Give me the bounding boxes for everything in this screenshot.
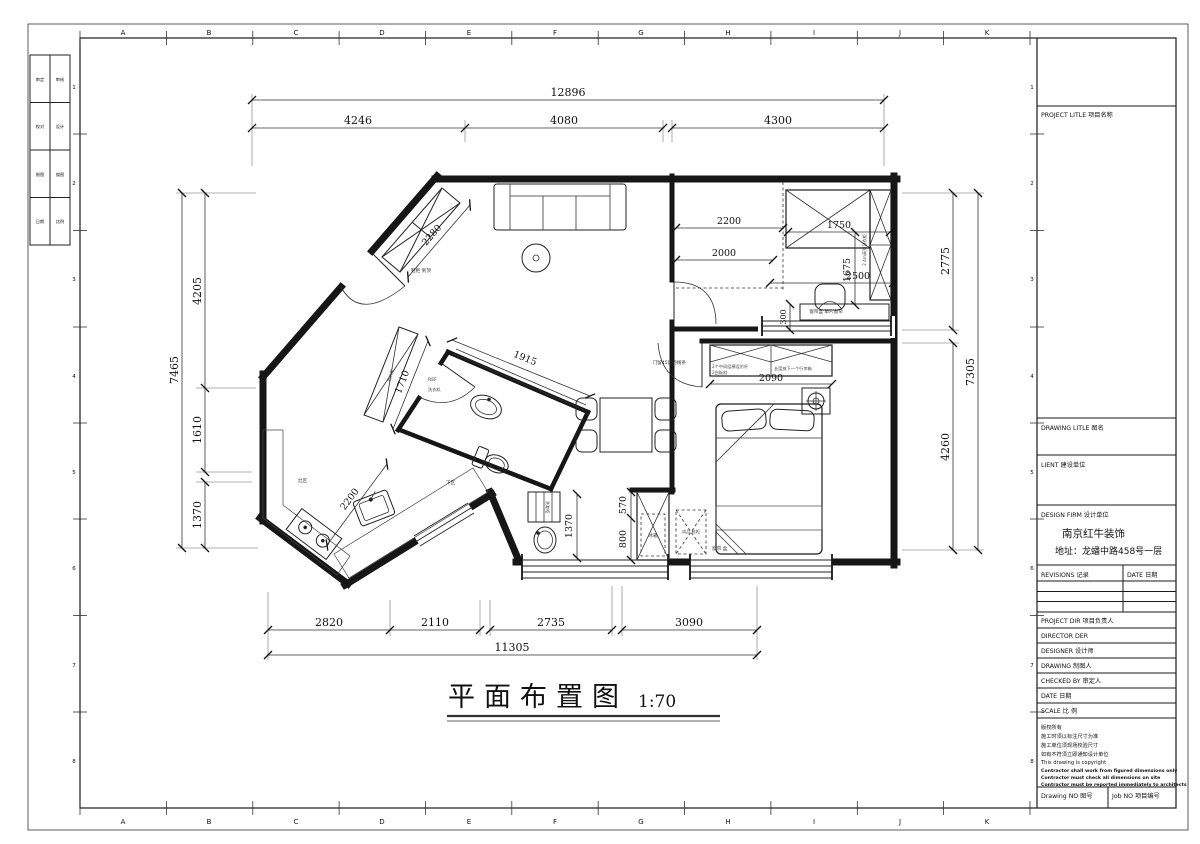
signature-strip: 审定审核 校对设计 制图描图 日期比例 xyxy=(30,55,70,245)
revisions-label: REVISIONS 记录 xyxy=(1041,571,1089,579)
svg-text:1: 1 xyxy=(72,85,76,91)
svg-text:如有不符须立即通知设计单位: 如有不符须立即通知设计单位 xyxy=(1041,750,1108,758)
svg-text:D: D xyxy=(379,818,384,826)
checked-by-label: CHECKED BY 审定人 xyxy=(1041,677,1101,685)
svg-text:施工单位须现场校验尺寸: 施工单位须现场校验尺寸 xyxy=(1041,741,1098,749)
hall-vanity-cabinet xyxy=(528,492,560,522)
revisions-date-label: DATE 日期 xyxy=(1127,571,1157,579)
design-firm-name: 南京红牛装饰 xyxy=(1062,527,1125,540)
entry-door xyxy=(341,253,405,304)
svg-text:3090: 3090 xyxy=(675,616,703,629)
study-dashed-area xyxy=(676,182,783,290)
svg-text:1: 1 xyxy=(1030,85,1034,91)
svg-text:J: J xyxy=(898,29,901,37)
svg-text:8: 8 xyxy=(1030,759,1034,765)
svg-text:800: 800 xyxy=(618,530,629,548)
dimensions-right: 7305 2775 4260 xyxy=(939,193,978,550)
design-firm-label: DESIGN FIRM 设计单位 xyxy=(1041,511,1109,519)
drawing-label: DRAWING 制图人 xyxy=(1041,662,1092,670)
svg-text:11305: 11305 xyxy=(495,641,530,654)
svg-text:A: A xyxy=(121,29,126,37)
svg-text:2: 2 xyxy=(72,181,76,187)
svg-text:H: H xyxy=(725,29,730,37)
row-numbers: 12345678 12345678 xyxy=(72,85,1034,765)
svg-text:B: B xyxy=(207,29,212,37)
svg-text:3: 3 xyxy=(1030,277,1034,283)
hall-basin xyxy=(534,527,556,553)
project-title-label: PROJECT LITLE 项目名称 xyxy=(1041,111,1113,119)
svg-text:描图: 描图 xyxy=(56,171,64,178)
design-firm-address: 地址：龙蟠中路458号一层 xyxy=(1055,545,1162,557)
lower-area-label: 下区 xyxy=(446,480,456,486)
svg-text:3: 3 xyxy=(72,277,76,283)
svg-text:4: 4 xyxy=(1030,374,1034,380)
bedroom-curtain-label: 窗帘 盒 xyxy=(712,545,728,552)
study-wardrobes xyxy=(786,190,891,300)
svg-text:1370: 1370 xyxy=(191,501,204,529)
copyright-note: 版权所有 施工时须以标注尺寸为准 施工单位须现场校验尺寸 如有不符须立即通知设计… xyxy=(1040,723,1187,788)
svg-text:1710: 1710 xyxy=(393,369,412,396)
svg-text:B: B xyxy=(207,818,212,826)
svg-text:1750: 1750 xyxy=(827,220,851,231)
svg-text:C: C xyxy=(294,818,299,826)
svg-text:制图: 制图 xyxy=(36,171,44,178)
svg-text:K: K xyxy=(985,29,990,37)
plan-title: 平面布置图 xyxy=(448,682,628,713)
scale-label: SCALE 比 例 xyxy=(1041,707,1077,715)
sofa xyxy=(494,184,626,230)
svg-text:E: E xyxy=(467,818,471,826)
svg-text:2110: 2110 xyxy=(421,616,449,629)
director-label: DIRECTOR DER xyxy=(1041,633,1089,640)
svg-text:版权所有: 版权所有 xyxy=(1041,723,1062,731)
svg-text:I: I xyxy=(813,818,815,826)
tall-wardrobe-label: 2.4m高到顶衣柜 xyxy=(861,234,868,266)
svg-text:1610: 1610 xyxy=(191,416,204,444)
column-letters-top: ABCDEFGHIJK xyxy=(121,29,990,37)
svg-text:A: A xyxy=(121,818,126,826)
wardrobe-note-1: 2个中间层横设吊杆 xyxy=(712,363,749,370)
svg-text:2280: 2280 xyxy=(420,223,444,248)
door45-label: 门留45度的线条 xyxy=(653,359,687,366)
nightstand-lamp xyxy=(802,388,830,414)
bedroom-wardrobe xyxy=(710,345,832,376)
svg-text:12896: 12896 xyxy=(551,86,586,99)
coffee-table xyxy=(522,244,550,272)
title-block: PROJECT LITLE 项目名称 DRAWING LITLE 图名 LIEN… xyxy=(1037,106,1187,808)
svg-text:F: F xyxy=(553,818,557,826)
svg-text:设计: 设计 xyxy=(56,123,64,130)
svg-text:7305: 7305 xyxy=(964,358,977,386)
svg-text:7: 7 xyxy=(72,663,76,669)
window-living xyxy=(522,554,668,582)
washer-label: 洗衣机 xyxy=(428,386,441,393)
svg-text:5: 5 xyxy=(1030,470,1034,476)
svg-text:K: K xyxy=(985,818,990,826)
svg-text:审核: 审核 xyxy=(56,76,65,83)
stove xyxy=(286,509,342,560)
bath-basin xyxy=(467,391,505,423)
svg-text:7: 7 xyxy=(1030,663,1034,669)
svg-text:日期: 日期 xyxy=(36,219,44,225)
dining-set xyxy=(576,398,676,452)
drawing-sheet: ABCDEFGHIJK ABCDEFGHIJK 12345678 1234567… xyxy=(0,0,1200,844)
wardrobe-note-3: 长度放下一个行李箱 xyxy=(774,365,812,372)
svg-text:校对: 校对 xyxy=(36,123,44,130)
svg-text:Contractor must check all dime: Contractor must check all dimensions on … xyxy=(1041,775,1160,781)
dimensions-bottom: 2820 2110 2735 3090 11305 xyxy=(268,616,757,655)
floor-plan-svg: ABCDEFGHIJK ABCDEFGHIJK 12345678 1234567… xyxy=(0,0,1200,844)
window-kitchen xyxy=(414,503,474,546)
project-dir-label: PROJECT DIR 项目负责人 xyxy=(1041,617,1114,625)
svg-text:施工时须以标注尺寸为准: 施工时须以标注尺寸为准 xyxy=(1041,732,1098,740)
bed xyxy=(716,404,822,554)
svg-text:2500: 2500 xyxy=(846,271,870,282)
svg-text:2200: 2200 xyxy=(338,487,361,513)
svg-text:4205: 4205 xyxy=(191,277,204,305)
fridge-cabinet xyxy=(637,492,669,560)
column-letters-bottom: ABCDEFGHIJK xyxy=(121,818,990,826)
drawing-no-label: Drawing NO 图号 xyxy=(1041,793,1093,800)
svg-text:2775: 2775 xyxy=(939,247,952,275)
svg-text:6: 6 xyxy=(72,566,76,572)
svg-text:H: H xyxy=(725,818,730,826)
svg-text:This drawing is copyright: This drawing is copyright xyxy=(1040,760,1106,766)
svg-text:E: E xyxy=(467,29,471,37)
svg-text:4246: 4246 xyxy=(344,114,372,127)
svg-text:G: G xyxy=(638,818,643,826)
wardrobe-note-2: 2白板材 xyxy=(712,369,727,376)
svg-text:比例: 比例 xyxy=(56,218,64,225)
ref-label: REF xyxy=(428,377,437,383)
designer-label: DESIGNER 设计师 xyxy=(1041,647,1094,655)
vanity-cabinet-label: 洗漱柜 xyxy=(544,501,551,514)
svg-text:1370: 1370 xyxy=(564,514,575,538)
ready-cabinet-label: 成品 鞋柜 xyxy=(682,528,700,535)
svg-text:4080: 4080 xyxy=(550,114,578,127)
client-label: LIENT 建设单位 xyxy=(1041,461,1085,469)
storage-label: 收纳柜 xyxy=(385,368,396,382)
plan-scale: 1:70 xyxy=(638,692,676,712)
svg-text:4300: 4300 xyxy=(764,114,792,127)
svg-text:570: 570 xyxy=(618,496,629,514)
svg-text:5: 5 xyxy=(72,470,76,476)
svg-text:Contractor must be reported im: Contractor must be reported immediately … xyxy=(1041,782,1187,788)
svg-text:2200: 2200 xyxy=(717,216,741,227)
job-no-label: Job NO 项目编号 xyxy=(1111,792,1160,800)
dimensions-top: 12896 4246 4080 4300 xyxy=(252,86,884,128)
window-bedroom xyxy=(690,554,832,582)
fridge-label: 冰箱 xyxy=(648,532,658,539)
date-label: DATE 日期 xyxy=(1041,692,1071,700)
svg-text:G: G xyxy=(638,29,643,37)
svg-text:I: I xyxy=(813,29,815,37)
svg-text:7465: 7465 xyxy=(168,356,181,384)
svg-text:2820: 2820 xyxy=(315,616,343,629)
svg-text:D: D xyxy=(379,29,384,37)
svg-text:2: 2 xyxy=(1030,181,1034,187)
svg-text:2000: 2000 xyxy=(712,248,736,259)
svg-text:300: 300 xyxy=(779,309,788,324)
shoe-cabinet-label: 鞋柜 到顶 xyxy=(411,267,431,274)
drawing-title-label: DRAWING LITLE 图名 xyxy=(1041,424,1104,432)
dimensions-left: 7465 4205 1610 1370 xyxy=(168,193,205,548)
svg-text:6: 6 xyxy=(1030,566,1034,572)
svg-text:J: J xyxy=(898,818,901,826)
svg-text:8: 8 xyxy=(72,759,76,765)
study-curtain-label: 窗帘盒 单片窗帘 xyxy=(809,308,843,315)
svg-text:审定: 审定 xyxy=(36,76,44,83)
svg-text:2735: 2735 xyxy=(537,616,565,629)
svg-text:F: F xyxy=(553,29,557,37)
svg-text:4260: 4260 xyxy=(939,433,952,461)
svg-text:2090: 2090 xyxy=(759,373,783,384)
plan-title-group: 平面布置图 1:70 xyxy=(447,682,720,721)
svg-text:Contractor shall work from fig: Contractor shall work from figured dimen… xyxy=(1041,768,1177,774)
svg-text:C: C xyxy=(294,29,299,37)
svg-text:4: 4 xyxy=(72,374,76,380)
stove-area-label: 灶区 xyxy=(298,477,308,484)
